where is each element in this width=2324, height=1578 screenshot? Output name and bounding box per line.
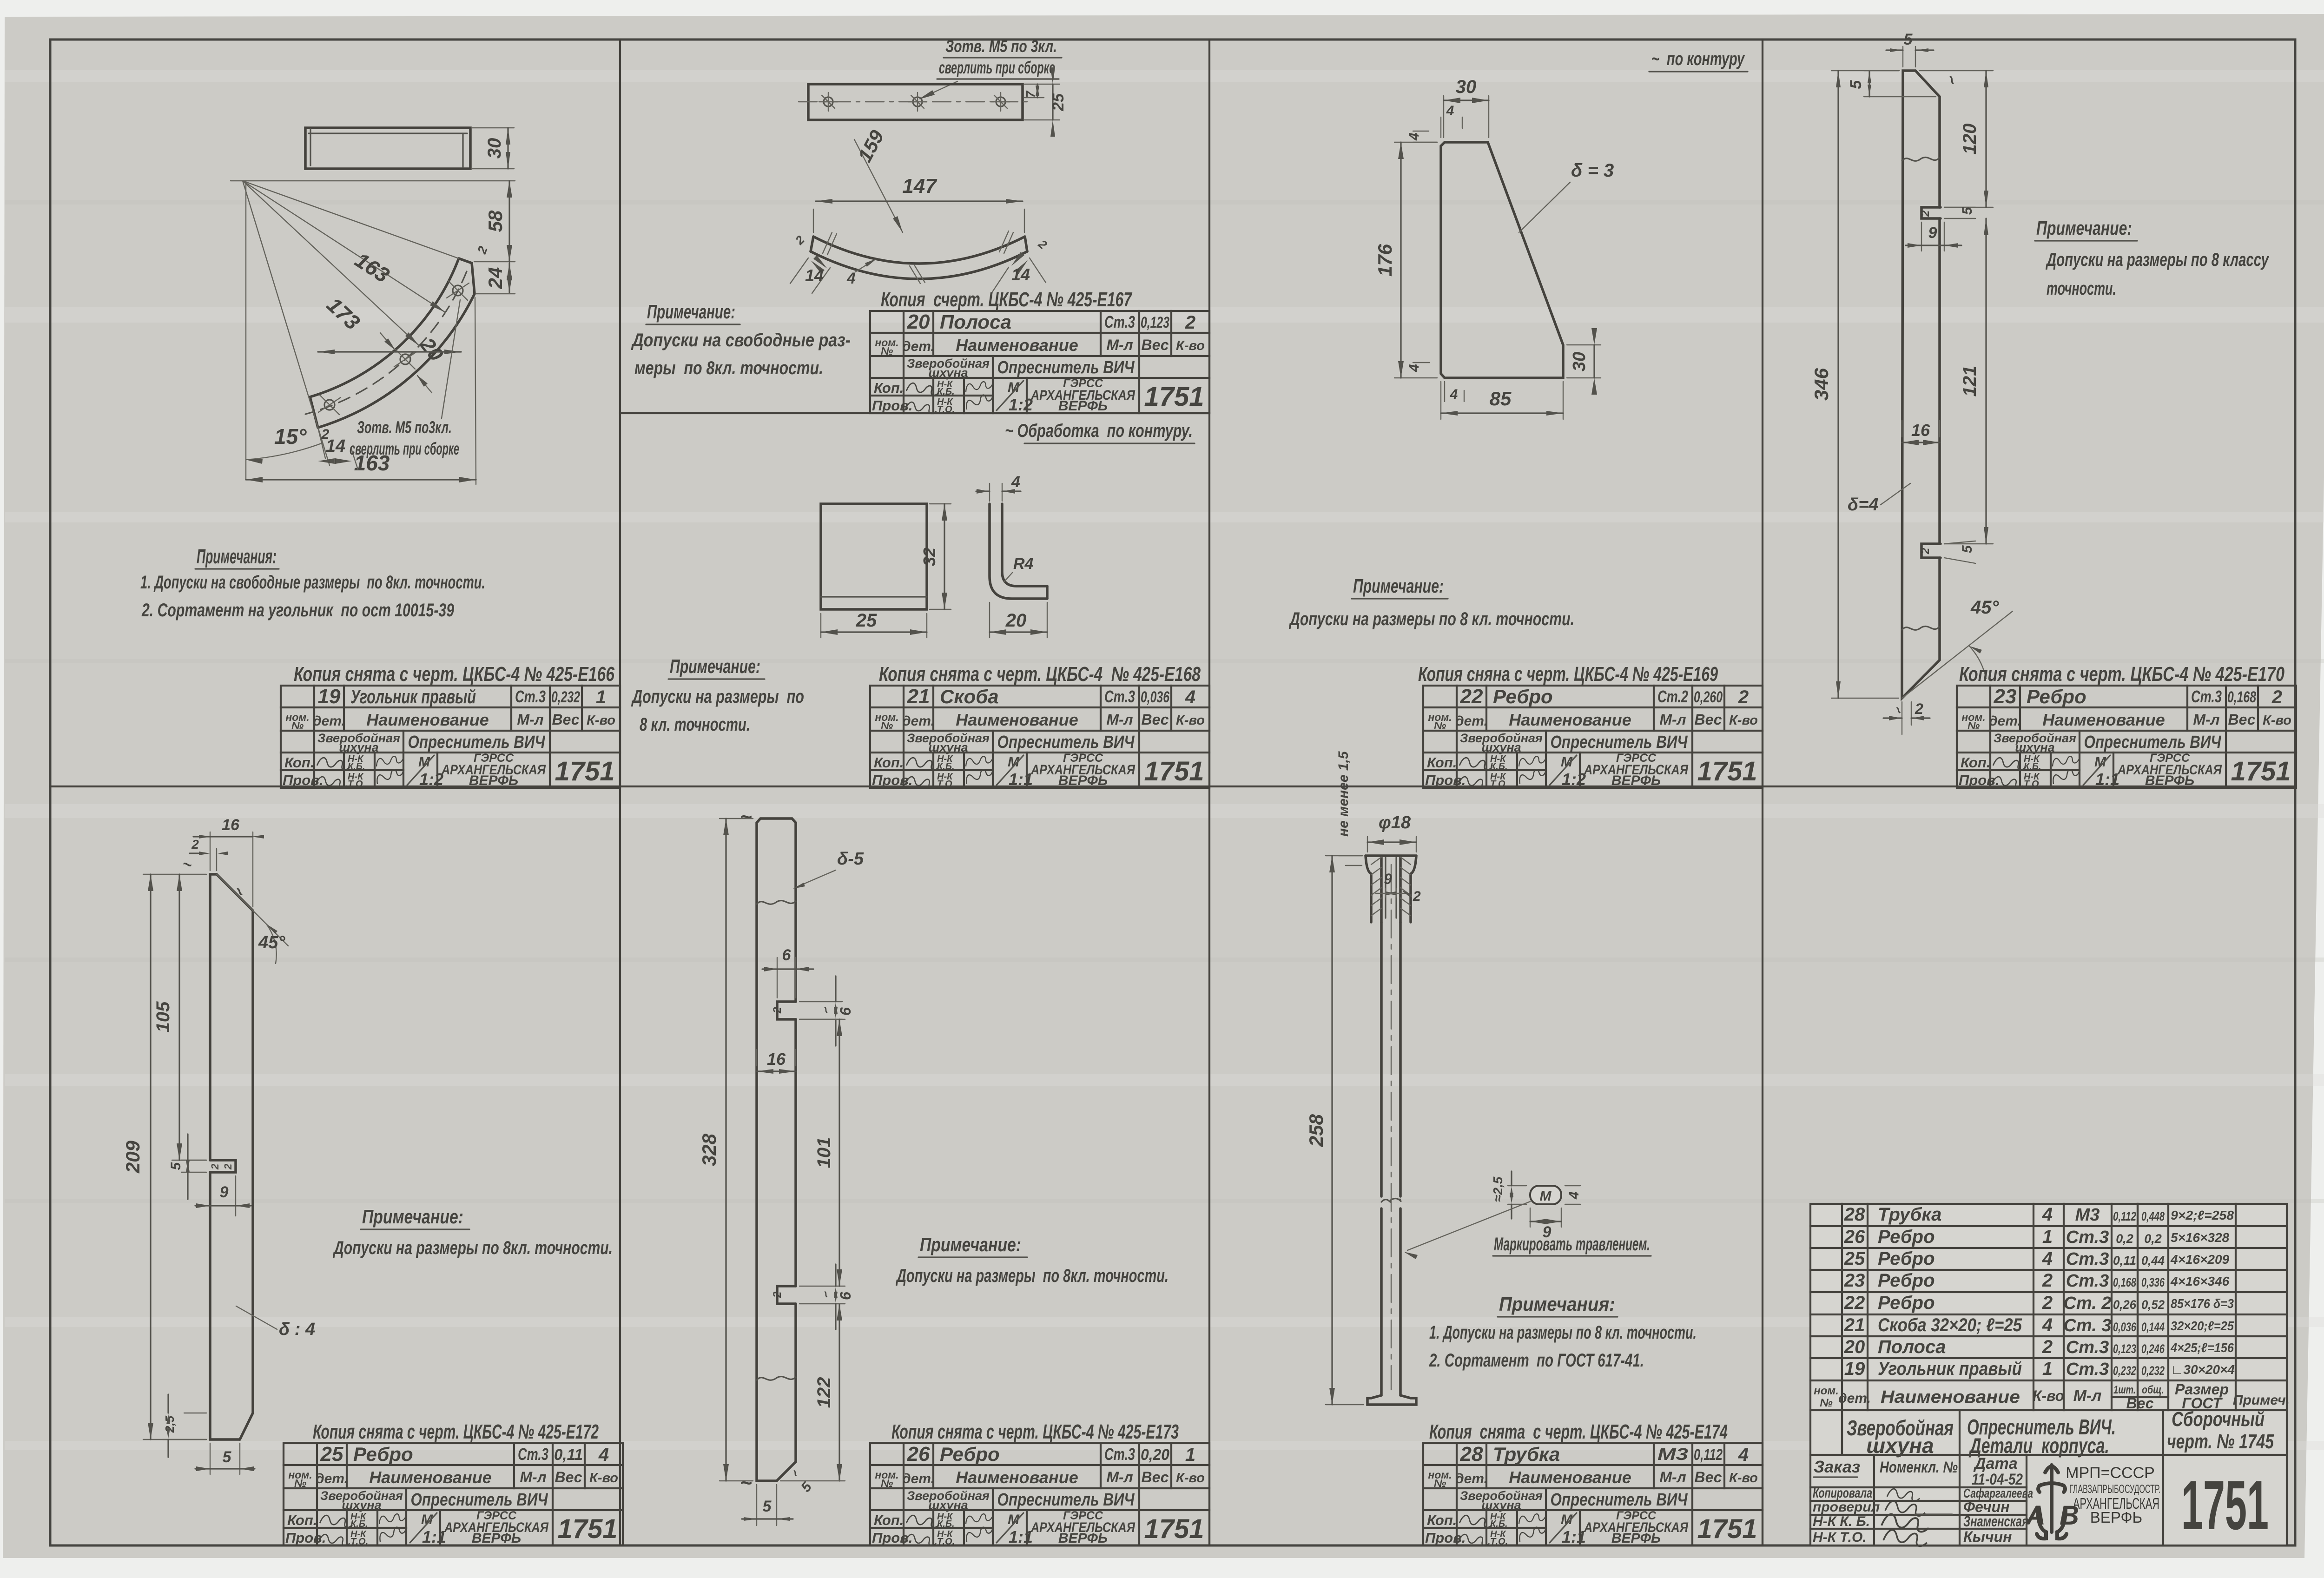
svg-text:0,2: 0,2 xyxy=(2144,1232,2162,1246)
svg-text:Т.О.: Т.О. xyxy=(2024,779,2041,789)
svg-text:30: 30 xyxy=(1570,352,1589,371)
svg-text:Пров.: Пров. xyxy=(872,1530,913,1546)
svg-text:0,246: 0,246 xyxy=(2141,1342,2165,1356)
svg-text:9: 9 xyxy=(1384,871,1392,887)
svg-text:1:2: 1:2 xyxy=(419,770,443,789)
svg-text:Опреснитель ВИЧ: Опреснитель ВИЧ xyxy=(1551,733,1688,752)
svg-text:Полоса: Полоса xyxy=(1878,1337,1946,1357)
svg-text:Допуски на размеры по: Допуски на размеры по xyxy=(631,687,804,707)
svg-text:1: 1 xyxy=(2042,1227,2053,1247)
svg-text:1751: 1751 xyxy=(557,1514,617,1544)
svg-text:Н-К К. Б.: Н-К К. Б. xyxy=(1813,1514,1870,1529)
svg-text:Примечание:: Примечание: xyxy=(2036,217,2132,239)
svg-text:Коп.: Коп. xyxy=(874,1512,904,1528)
svg-text:2: 2 xyxy=(321,427,330,442)
svg-text:5: 5 xyxy=(763,1498,772,1515)
svg-text:Вес: Вес xyxy=(1141,337,1169,353)
svg-text:Кычин: Кычин xyxy=(1963,1528,2012,1545)
svg-text:Примечания:: Примечания: xyxy=(1499,1293,1615,1315)
svg-text:1751: 1751 xyxy=(1697,1514,1757,1544)
svg-text:Пров.: Пров. xyxy=(1959,772,2000,788)
svg-text:1: 1 xyxy=(596,687,606,707)
svg-text:Коп.: Коп. xyxy=(284,754,314,771)
svg-text:Ст.3: Ст.3 xyxy=(515,687,546,706)
svg-text:14: 14 xyxy=(805,266,824,285)
svg-text:6: 6 xyxy=(837,1007,854,1016)
svg-text:1751: 1751 xyxy=(1144,382,1204,412)
svg-text:1:2: 1:2 xyxy=(1009,395,1033,414)
svg-text:16: 16 xyxy=(767,1050,786,1069)
svg-text:шхуна: шхуна xyxy=(928,366,968,380)
svg-text:Номенкл. №: Номенкл. № xyxy=(1880,1459,1958,1476)
svg-text:Копия снята с черт. ЦКБС-4 № 4: Копия снята с черт. ЦКБС-4 № 425-Е173 xyxy=(891,1420,1179,1443)
svg-text:К-во: К-во xyxy=(2263,713,2291,728)
svg-text:Полоса: Полоса xyxy=(940,311,1011,333)
svg-text:Примечание:: Примечание: xyxy=(647,301,735,323)
svg-text:328: 328 xyxy=(698,1133,720,1166)
svg-text:Примеч.: Примеч. xyxy=(2233,1393,2290,1408)
svg-text:Вес: Вес xyxy=(1694,1469,1722,1486)
svg-text:16: 16 xyxy=(222,816,240,834)
svg-text:Т.О.: Т.О. xyxy=(1490,779,1508,789)
svg-text:Ребро: Ребро xyxy=(1878,1293,1935,1313)
svg-text:М-л: М-л xyxy=(2193,711,2219,728)
svg-text:Дата: Дата xyxy=(1973,1455,2018,1472)
svg-text:Пров.: Пров. xyxy=(1425,772,1466,788)
svg-text:№: № xyxy=(881,1477,893,1489)
svg-text:19: 19 xyxy=(1844,1359,1865,1379)
svg-text:4: 4 xyxy=(2042,1315,2053,1335)
svg-text:Ребро: Ребро xyxy=(1878,1270,1935,1291)
svg-text:Наименование: Наименование xyxy=(2042,710,2165,729)
svg-text:К-во: К-во xyxy=(2033,1387,2064,1404)
svg-text:ВЕРФЬ: ВЕРФЬ xyxy=(1058,773,1108,788)
svg-text:№: № xyxy=(1434,720,1446,732)
svg-text:2: 2 xyxy=(2042,1293,2053,1313)
svg-text:Вес: Вес xyxy=(1694,711,1722,728)
svg-text:2: 2 xyxy=(2271,687,2282,707)
svg-text:Примечание:: Примечание: xyxy=(1353,575,1444,597)
svg-text:Ст.2: Ст.2 xyxy=(1657,687,1688,706)
svg-text:5: 5 xyxy=(1847,79,1865,89)
svg-text:Наименование: Наименование xyxy=(1881,1387,2020,1407)
svg-text:0,168: 0,168 xyxy=(2227,688,2256,706)
svg-text:R4: R4 xyxy=(1013,555,1034,573)
svg-text:2: 2 xyxy=(1413,889,1421,904)
svg-text:меры по 8кл. точности.: меры по 8кл. точности. xyxy=(634,358,823,378)
svg-text:105: 105 xyxy=(153,1001,173,1032)
svg-text:дет.: дет. xyxy=(313,713,345,729)
svg-text:176: 176 xyxy=(1374,244,1396,277)
svg-text:Пров.: Пров. xyxy=(872,772,913,788)
svg-text:Маркировать травлением.: Маркировать травлением. xyxy=(1494,1234,1650,1254)
svg-text:К.Б.: К.Б. xyxy=(348,761,365,772)
svg-text:Наименование: Наименование xyxy=(369,1468,491,1487)
svg-text:0,11: 0,11 xyxy=(2113,1254,2136,1268)
svg-text:2: 2 xyxy=(1919,210,1932,217)
svg-text:Примечание:: Примечание: xyxy=(362,1206,463,1228)
svg-text:Вес: Вес xyxy=(552,711,579,728)
svg-text:9×2;ℓ=258: 9×2;ℓ=258 xyxy=(2171,1208,2234,1222)
svg-text:шхуна: шхуна xyxy=(928,740,968,754)
svg-text:101: 101 xyxy=(814,1137,834,1169)
svg-text:Опреснитель ВИЧ: Опреснитель ВИЧ xyxy=(997,733,1135,752)
svg-text:δ-5: δ-5 xyxy=(837,849,864,869)
svg-text:Скоба: Скоба xyxy=(940,686,999,707)
svg-text:22: 22 xyxy=(1844,1293,1865,1313)
svg-text:Копия снята с черт. ЦКБС-4 №: Копия снята с черт. ЦКБС-4 № 425-Е174 xyxy=(1429,1420,1728,1443)
svg-text:ВЕРФЬ: ВЕРФЬ xyxy=(1058,1531,1108,1546)
svg-text:шхуна: шхуна xyxy=(342,1498,381,1512)
svg-text:ВЕРФЬ: ВЕРФЬ xyxy=(469,773,518,788)
svg-text:К-во: К-во xyxy=(587,713,615,728)
svg-text:25: 25 xyxy=(856,610,877,631)
svg-text:Ст.3: Ст.3 xyxy=(2191,687,2222,706)
svg-text:120: 120 xyxy=(1960,124,1980,155)
svg-text:ВЕРФЬ: ВЕРФЬ xyxy=(1058,398,1108,414)
svg-text:1:1: 1:1 xyxy=(422,1527,446,1546)
svg-text:δ = 3: δ = 3 xyxy=(1571,160,1614,181)
svg-text:0,232: 0,232 xyxy=(551,688,580,706)
svg-text:Копия сняна с черт. ЦКБС-4 № 4: Копия сняна с черт. ЦКБС-4 № 425-Е169 xyxy=(1418,663,1718,686)
svg-text:5: 5 xyxy=(1960,206,1975,215)
svg-text:4: 4 xyxy=(2042,1248,2053,1269)
svg-text:~ Обработка по контуру.: ~ Обработка по контуру. xyxy=(1005,421,1193,441)
svg-text:Угольник правый: Угольник правый xyxy=(350,686,476,707)
svg-text:1:1: 1:1 xyxy=(1009,770,1033,789)
svg-text:δ : 4: δ : 4 xyxy=(279,1320,315,1339)
svg-text:Допуски на размеры по 8 кл. то: Допуски на размеры по 8 кл. точности. xyxy=(1289,609,1574,629)
svg-text:К.Б.: К.Б. xyxy=(350,1519,368,1529)
svg-text:Т.О.: Т.О. xyxy=(937,404,955,415)
svg-text:Вес: Вес xyxy=(2126,1395,2153,1412)
svg-text:Ст.3: Ст.3 xyxy=(1104,1445,1135,1464)
svg-text:20: 20 xyxy=(907,310,930,333)
svg-text:0,232: 0,232 xyxy=(2141,1364,2165,1378)
svg-text:4: 4 xyxy=(1446,103,1454,119)
svg-text:Т.О.: Т.О. xyxy=(937,779,955,789)
svg-text:0,11: 0,11 xyxy=(554,1446,583,1464)
svg-text:2: 2 xyxy=(771,1007,784,1014)
svg-text:Коп.: Коп. xyxy=(874,754,904,771)
svg-text:М-л: М-л xyxy=(520,1469,546,1486)
svg-text:Т.О.: Т.О. xyxy=(1490,1537,1508,1547)
svg-text:9: 9 xyxy=(1928,224,1937,242)
svg-text:ВЕРФЬ: ВЕРФЬ xyxy=(2145,773,2194,788)
svg-text:4: 4 xyxy=(1566,1191,1582,1200)
svg-text:15°: 15° xyxy=(274,424,307,449)
svg-text:0,112: 0,112 xyxy=(2113,1209,2136,1223)
svg-text:Допуски на размеры по 8 классу: Допуски на размеры по 8 классу xyxy=(2046,250,2269,270)
svg-text:Вес: Вес xyxy=(555,1469,582,1486)
svg-text:4: 4 xyxy=(1406,364,1422,372)
svg-text:Наименование: Наименование xyxy=(1509,1468,1631,1487)
svg-text:4: 4 xyxy=(2042,1204,2053,1225)
svg-text:дет.: дет. xyxy=(1838,1391,1871,1406)
svg-text:30: 30 xyxy=(484,138,505,159)
svg-text:0,112: 0,112 xyxy=(1694,1446,1723,1464)
svg-text:30: 30 xyxy=(1456,77,1477,97)
svg-text:Вес: Вес xyxy=(2228,711,2255,728)
svg-text:0,036: 0,036 xyxy=(2113,1320,2137,1334)
svg-text:М-л: М-л xyxy=(1106,337,1133,353)
svg-text:0,2: 0,2 xyxy=(2116,1232,2133,1246)
svg-text:Ст.3: Ст.3 xyxy=(2066,1228,2109,1247)
svg-text:0,44: 0,44 xyxy=(2141,1254,2165,1268)
svg-text:4: 4 xyxy=(846,270,856,287)
svg-text:φ18: φ18 xyxy=(1379,813,1411,832)
svg-text:2: 2 xyxy=(1915,700,1923,717)
svg-text:М-л: М-л xyxy=(1106,711,1133,728)
svg-text:4: 4 xyxy=(1450,387,1458,402)
svg-text:Сборочный: Сборочный xyxy=(2172,1408,2265,1431)
svg-text:16: 16 xyxy=(1911,421,1930,440)
svg-text:23: 23 xyxy=(1994,685,2017,708)
svg-text:ГЛАВЗАПРЫБОСУДОСТР.: ГЛАВЗАПРЫБОСУДОСТР. xyxy=(2069,1483,2160,1496)
svg-text:∟30×20×4: ∟30×20×4 xyxy=(2171,1362,2235,1377)
svg-text:Ребро: Ребро xyxy=(940,1443,1000,1465)
svg-text:Т.О.: Т.О. xyxy=(348,779,365,789)
svg-text:1:1: 1:1 xyxy=(1562,1527,1586,1546)
svg-text:Наименование: Наименование xyxy=(956,336,1078,355)
svg-text:Наименование: Наименование xyxy=(956,710,1078,729)
svg-text:1:2: 1:2 xyxy=(1562,770,1586,789)
svg-text:А: А xyxy=(2025,1500,2046,1531)
svg-text:258: 258 xyxy=(1305,1114,1327,1147)
svg-text:346: 346 xyxy=(1810,368,1832,401)
svg-text:1:1: 1:1 xyxy=(2095,770,2119,789)
svg-text:209: 209 xyxy=(122,1140,144,1174)
svg-text:К-во: К-во xyxy=(1729,1471,1758,1486)
svg-text:0,448: 0,448 xyxy=(2141,1209,2165,1223)
svg-text:Угольник правый: Угольник правый xyxy=(1878,1359,2022,1379)
svg-text:М-л: М-л xyxy=(1659,711,1686,728)
svg-text:28: 28 xyxy=(1460,1443,1483,1466)
svg-text:Детали корпуса.: Детали корпуса. xyxy=(1968,1433,2109,1458)
svg-text:2: 2 xyxy=(1919,548,1932,555)
svg-text:дет.: дет. xyxy=(316,1471,348,1486)
svg-text:шхуна: шхуна xyxy=(339,740,378,754)
svg-text:≈2,5: ≈2,5 xyxy=(1491,1176,1505,1202)
svg-text:ВЕРФЬ: ВЕРФЬ xyxy=(1611,1531,1661,1546)
svg-text:Н-К Т.О.: Н-К Т.О. xyxy=(1813,1530,1867,1545)
svg-text:0,144: 0,144 xyxy=(2141,1320,2165,1334)
svg-text:Ст.3: Ст.3 xyxy=(518,1445,548,1464)
svg-text:8 кл. точности.: 8 кл. точности. xyxy=(640,714,750,735)
svg-text:шхуна: шхуна xyxy=(2015,740,2054,754)
svg-text:19: 19 xyxy=(318,685,341,708)
svg-text:Ст.3: Ст.3 xyxy=(2066,1271,2109,1291)
svg-text:1: 1 xyxy=(1185,1445,1195,1465)
svg-text:Ст.3: Ст.3 xyxy=(2066,1360,2109,1379)
svg-text:черт. № 1745: черт. № 1745 xyxy=(2167,1430,2274,1453)
svg-text:ВЕРФЬ: ВЕРФЬ xyxy=(1611,773,1661,788)
svg-text:6: 6 xyxy=(782,946,792,964)
svg-text:1751: 1751 xyxy=(1697,756,1757,786)
svg-text:1751: 1751 xyxy=(1144,756,1204,786)
svg-text:№: № xyxy=(1434,1477,1446,1489)
svg-text:Пров.: Пров. xyxy=(285,1530,326,1546)
svg-text:Трубка: Трубка xyxy=(1493,1443,1560,1465)
svg-text:5: 5 xyxy=(1904,31,1913,48)
svg-text:Допуски на размеры по 8кл. то: Допуски на размеры по 8кл. точности. xyxy=(896,1266,1169,1286)
svg-text:25: 25 xyxy=(1844,1248,1865,1269)
svg-text:сверлить при сборке: сверлить при сборке xyxy=(939,58,1055,77)
svg-text:М: М xyxy=(1540,1188,1552,1204)
svg-text:26: 26 xyxy=(1844,1227,1865,1247)
svg-text:1шт.: 1шт. xyxy=(2113,1384,2136,1396)
svg-text:4×16×209: 4×16×209 xyxy=(2170,1252,2230,1267)
svg-text:МРП=СССР: МРП=СССР xyxy=(2066,1464,2155,1482)
svg-text:0,036: 0,036 xyxy=(1141,688,1170,706)
svg-text:Ст. 2: Ст. 2 xyxy=(2064,1294,2112,1313)
svg-text:дет.: дет. xyxy=(902,339,935,354)
svg-text:85×176 δ=3: 85×176 δ=3 xyxy=(2171,1296,2234,1311)
svg-text:Коп.: Коп. xyxy=(287,1512,317,1528)
svg-text:М-л: М-л xyxy=(2073,1387,2102,1405)
svg-text:1. Допуски на свободные размер: 1. Допуски на свободные размеры по 8кл. … xyxy=(140,572,485,593)
svg-text:2. Сортамент на угольник по о: 2. Сортамент на угольник по ост 10015-39 xyxy=(141,600,454,621)
svg-text:Ст.3: Ст.3 xyxy=(2066,1249,2109,1269)
svg-text:Копия счерт. ЦКБС-4 № 425-Е16: Копия счерт. ЦКБС-4 № 425-Е167 xyxy=(881,288,1133,311)
svg-text:Копия снята с черт. ЦКБС-4 № 4: Копия снята с черт. ЦКБС-4 № 425-Е170 xyxy=(1959,663,2284,686)
svg-text:14: 14 xyxy=(1011,265,1030,284)
svg-text:4: 4 xyxy=(1011,473,1020,491)
svg-text:0,26: 0,26 xyxy=(2113,1298,2137,1312)
svg-text:М3: М3 xyxy=(2075,1205,2100,1225)
svg-text:Ст.3: Ст.3 xyxy=(2066,1338,2109,1357)
svg-text:К-во: К-во xyxy=(1729,713,1758,728)
svg-text:Заказ: Заказ xyxy=(1814,1457,1860,1476)
svg-text:Опреснитель ВИЧ: Опреснитель ВИЧ xyxy=(997,1490,1135,1510)
svg-text:2: 2 xyxy=(191,837,199,852)
svg-text:45°: 45° xyxy=(1970,597,1999,618)
svg-text:4: 4 xyxy=(598,1445,609,1465)
svg-text:Вес: Вес xyxy=(1141,711,1169,728)
svg-text:23: 23 xyxy=(1844,1270,1865,1291)
svg-text:М-л: М-л xyxy=(1659,1469,1686,1486)
svg-text:Примечания:: Примечания: xyxy=(197,545,277,568)
svg-text:Коп.: Коп. xyxy=(874,380,904,396)
svg-text:4×16×346: 4×16×346 xyxy=(2170,1274,2230,1288)
svg-text:дет.: дет. xyxy=(1455,1471,1488,1486)
svg-text:0,52: 0,52 xyxy=(2141,1298,2165,1312)
svg-text:28: 28 xyxy=(1844,1204,1865,1225)
svg-text:2: 2 xyxy=(2042,1337,2053,1357)
svg-text:1751: 1751 xyxy=(2181,1466,2269,1544)
svg-text:Зотв. М5 по 3кл.: Зотв. М5 по 3кл. xyxy=(945,37,1057,56)
svg-text:Примечание:: Примечание: xyxy=(920,1234,1021,1255)
svg-text:К-во: К-во xyxy=(589,1471,618,1486)
svg-text:№: № xyxy=(291,720,304,732)
svg-text:5×16×328: 5×16×328 xyxy=(2171,1230,2230,1245)
svg-text:4×25;ℓ=156: 4×25;ℓ=156 xyxy=(2170,1340,2234,1355)
svg-text:0,123: 0,123 xyxy=(1141,314,1169,331)
svg-text:Скоба 32×20; ℓ=25: Скоба 32×20; ℓ=25 xyxy=(1878,1315,2022,1335)
svg-text:Вес: Вес xyxy=(1141,1469,1169,1486)
svg-text:М3: М3 xyxy=(1657,1445,1688,1464)
svg-text:4: 4 xyxy=(1406,132,1422,141)
svg-text:Пров.: Пров. xyxy=(872,397,913,414)
svg-text:Ст. 3: Ст. 3 xyxy=(2064,1316,2112,1335)
svg-text:К.Б.: К.Б. xyxy=(1490,1519,1508,1529)
svg-text:Ребро: Ребро xyxy=(1493,686,1553,707)
svg-text:~: ~ xyxy=(740,806,752,828)
svg-text:26: 26 xyxy=(907,1443,930,1466)
svg-text:не менее 1,5: не менее 1,5 xyxy=(1336,751,1351,837)
svg-text:6: 6 xyxy=(837,1292,854,1300)
svg-text:0,168: 0,168 xyxy=(2113,1275,2136,1289)
svg-text:5: 5 xyxy=(1960,545,1975,553)
svg-text:дет.: дет. xyxy=(1455,713,1488,729)
svg-text:1751: 1751 xyxy=(1144,1514,1204,1544)
svg-text:Ст.3: Ст.3 xyxy=(1104,312,1135,331)
svg-text:Наименование: Наименование xyxy=(366,710,489,729)
svg-text:21: 21 xyxy=(907,685,930,708)
svg-text:К.Б.: К.Б. xyxy=(937,387,955,397)
svg-text:24: 24 xyxy=(484,267,506,290)
svg-text:5: 5 xyxy=(223,1448,232,1466)
svg-text:Копия снята с черт. ЦКБС-4 № 4: Копия снята с черт. ЦКБС-4 № 425-Е172 xyxy=(313,1420,599,1443)
svg-text:2: 2 xyxy=(209,1163,221,1170)
svg-text:2: 2 xyxy=(222,1163,234,1170)
svg-text:Т.О.: Т.О. xyxy=(937,1537,955,1547)
svg-text:Ребро: Ребро xyxy=(2027,686,2086,707)
svg-text:№: № xyxy=(294,1477,306,1489)
svg-text:32: 32 xyxy=(920,548,939,566)
svg-text:21: 21 xyxy=(1844,1315,1865,1335)
svg-text:№: № xyxy=(1820,1397,1833,1409)
svg-text:Ребро: Ребро xyxy=(1878,1248,1935,1269)
svg-text:шхуна: шхуна xyxy=(1866,1433,1934,1458)
svg-text:К.Б.: К.Б. xyxy=(937,761,955,772)
svg-text:22: 22 xyxy=(1460,685,1483,708)
svg-text:Примечание:: Примечание: xyxy=(670,655,760,677)
svg-text:58: 58 xyxy=(484,210,506,232)
svg-text:25: 25 xyxy=(320,1443,343,1466)
svg-text:шхуна: шхуна xyxy=(928,1498,968,1512)
svg-text:К-во: К-во xyxy=(1176,713,1205,728)
svg-text:δ=4: δ=4 xyxy=(1848,495,1879,515)
svg-text:дет.: дет. xyxy=(902,1471,935,1486)
svg-text:0,232: 0,232 xyxy=(2113,1364,2136,1378)
svg-text:Знаменская: Знаменская xyxy=(1963,1513,2028,1530)
svg-text:85: 85 xyxy=(1490,388,1512,409)
svg-text:1:1: 1:1 xyxy=(1009,1527,1033,1546)
svg-text:Пров.: Пров. xyxy=(283,772,324,788)
svg-text:1751: 1751 xyxy=(2231,756,2291,786)
svg-text:9: 9 xyxy=(220,1183,229,1201)
svg-text:Ст.3: Ст.3 xyxy=(1104,687,1135,706)
svg-text:2: 2 xyxy=(771,1291,784,1298)
svg-text:Опреснитель ВИЧ: Опреснитель ВИЧ xyxy=(997,358,1135,377)
svg-text:Копия снята с черт. ЦКБС-4 № 4: Копия снята с черт. ЦКБС-4 № 425-Е166 xyxy=(294,663,614,686)
svg-text:проверил: проверил xyxy=(1813,1499,1880,1515)
svg-text:4: 4 xyxy=(1185,687,1195,707)
svg-text:Опреснитель ВИЧ: Опреснитель ВИЧ xyxy=(408,733,546,752)
svg-text:20: 20 xyxy=(1005,610,1027,631)
svg-text:ном.: ном. xyxy=(1814,1385,1839,1397)
svg-text:~ по контуру: ~ по контуру xyxy=(1651,49,1745,69)
svg-text:2. Сортамент по ГОСТ 617-41.: 2. Сортамент по ГОСТ 617-41. xyxy=(1429,1350,1644,1371)
svg-text:20: 20 xyxy=(1844,1337,1865,1357)
svg-text:М-л: М-л xyxy=(1106,1469,1133,1486)
svg-text:Зотв. М5 по3кл.: Зотв. М5 по3кл. xyxy=(357,418,452,437)
svg-text:7: 7 xyxy=(1023,90,1037,98)
svg-text:122: 122 xyxy=(814,1377,834,1408)
svg-text:0,123: 0,123 xyxy=(2113,1342,2136,1356)
svg-text:точности.: точности. xyxy=(2047,278,2116,299)
